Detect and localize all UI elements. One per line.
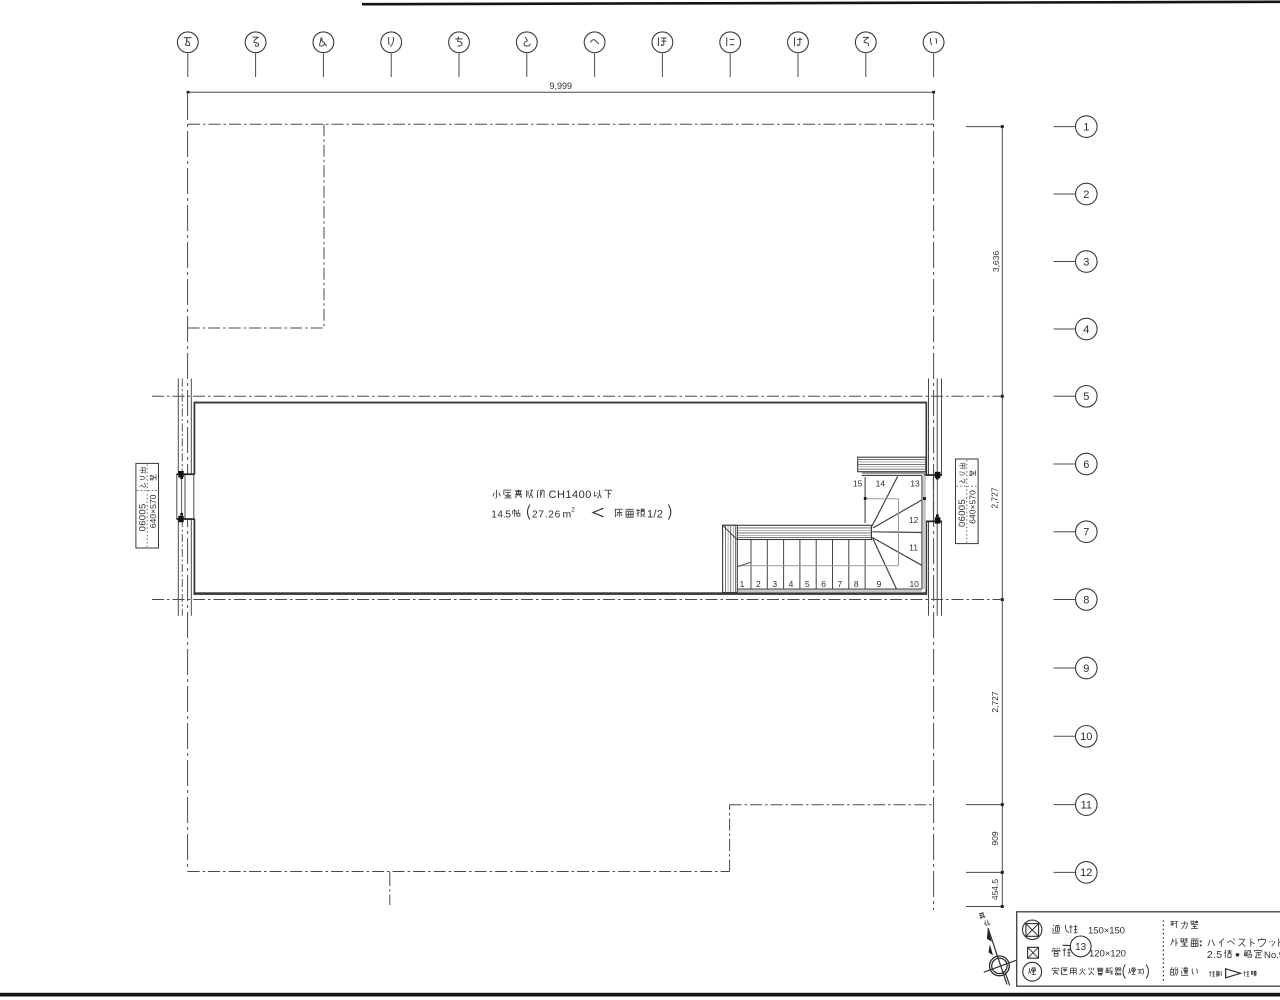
svg-text:11: 11 — [909, 543, 918, 553]
svg-text:11: 11 — [1081, 799, 1092, 811]
svg-text:5: 5 — [506, 509, 512, 520]
svg-text:No.9: No.9 — [1264, 950, 1280, 961]
svg-text:2: 2 — [756, 579, 761, 589]
svg-text:27.26: 27.26 — [532, 509, 561, 520]
svg-text:14: 14 — [876, 479, 886, 489]
svg-text:2: 2 — [571, 507, 575, 514]
svg-text:9,999: 9,999 — [550, 81, 573, 91]
svg-text:12: 12 — [1080, 867, 1092, 879]
svg-text:9: 9 — [877, 579, 882, 589]
svg-text:13: 13 — [910, 479, 920, 489]
svg-text:3,636: 3,636 — [991, 251, 1001, 273]
svg-text:10: 10 — [909, 579, 919, 589]
svg-text:8: 8 — [854, 579, 859, 589]
svg-text:640×570: 640×570 — [148, 494, 158, 528]
svg-text:640×570: 640×570 — [968, 490, 978, 524]
svg-text:150×150: 150×150 — [1088, 926, 1125, 937]
svg-text:06005: 06005 — [137, 503, 148, 531]
svg-text:2,727: 2,727 — [990, 691, 1000, 713]
svg-text:5: 5 — [805, 579, 810, 589]
svg-text:2.5: 2.5 — [1207, 949, 1223, 961]
svg-text:7: 7 — [1083, 527, 1089, 539]
svg-text:10: 10 — [1080, 731, 1092, 743]
svg-text:3: 3 — [772, 579, 777, 589]
svg-text:4: 4 — [789, 579, 794, 589]
svg-text:454.5: 454.5 — [990, 879, 1000, 901]
svg-text:6: 6 — [821, 579, 826, 589]
svg-text:2,727: 2,727 — [990, 487, 1000, 509]
svg-text:6: 6 — [1083, 459, 1089, 471]
svg-text:7: 7 — [838, 579, 843, 589]
svg-text:14.: 14. — [491, 509, 506, 520]
svg-text:1: 1 — [740, 579, 745, 589]
svg-text:12: 12 — [909, 515, 919, 525]
svg-text:m: m — [563, 508, 572, 520]
svg-text:06005: 06005 — [957, 499, 968, 527]
svg-text:909: 909 — [990, 831, 1000, 845]
svg-text:1/2: 1/2 — [647, 508, 663, 520]
svg-text:13: 13 — [1075, 942, 1087, 953]
svg-text:2: 2 — [1083, 189, 1089, 201]
svg-text:4: 4 — [1083, 324, 1089, 336]
svg-text:8: 8 — [1083, 594, 1089, 606]
svg-text:9: 9 — [1083, 663, 1089, 675]
svg-text:15: 15 — [853, 479, 863, 489]
svg-text:120×120: 120×120 — [1089, 949, 1126, 960]
svg-text:5: 5 — [1083, 391, 1089, 403]
svg-text:3: 3 — [1083, 256, 1089, 268]
svg-text:CH1400: CH1400 — [549, 489, 592, 501]
svg-text:1: 1 — [1083, 121, 1089, 133]
